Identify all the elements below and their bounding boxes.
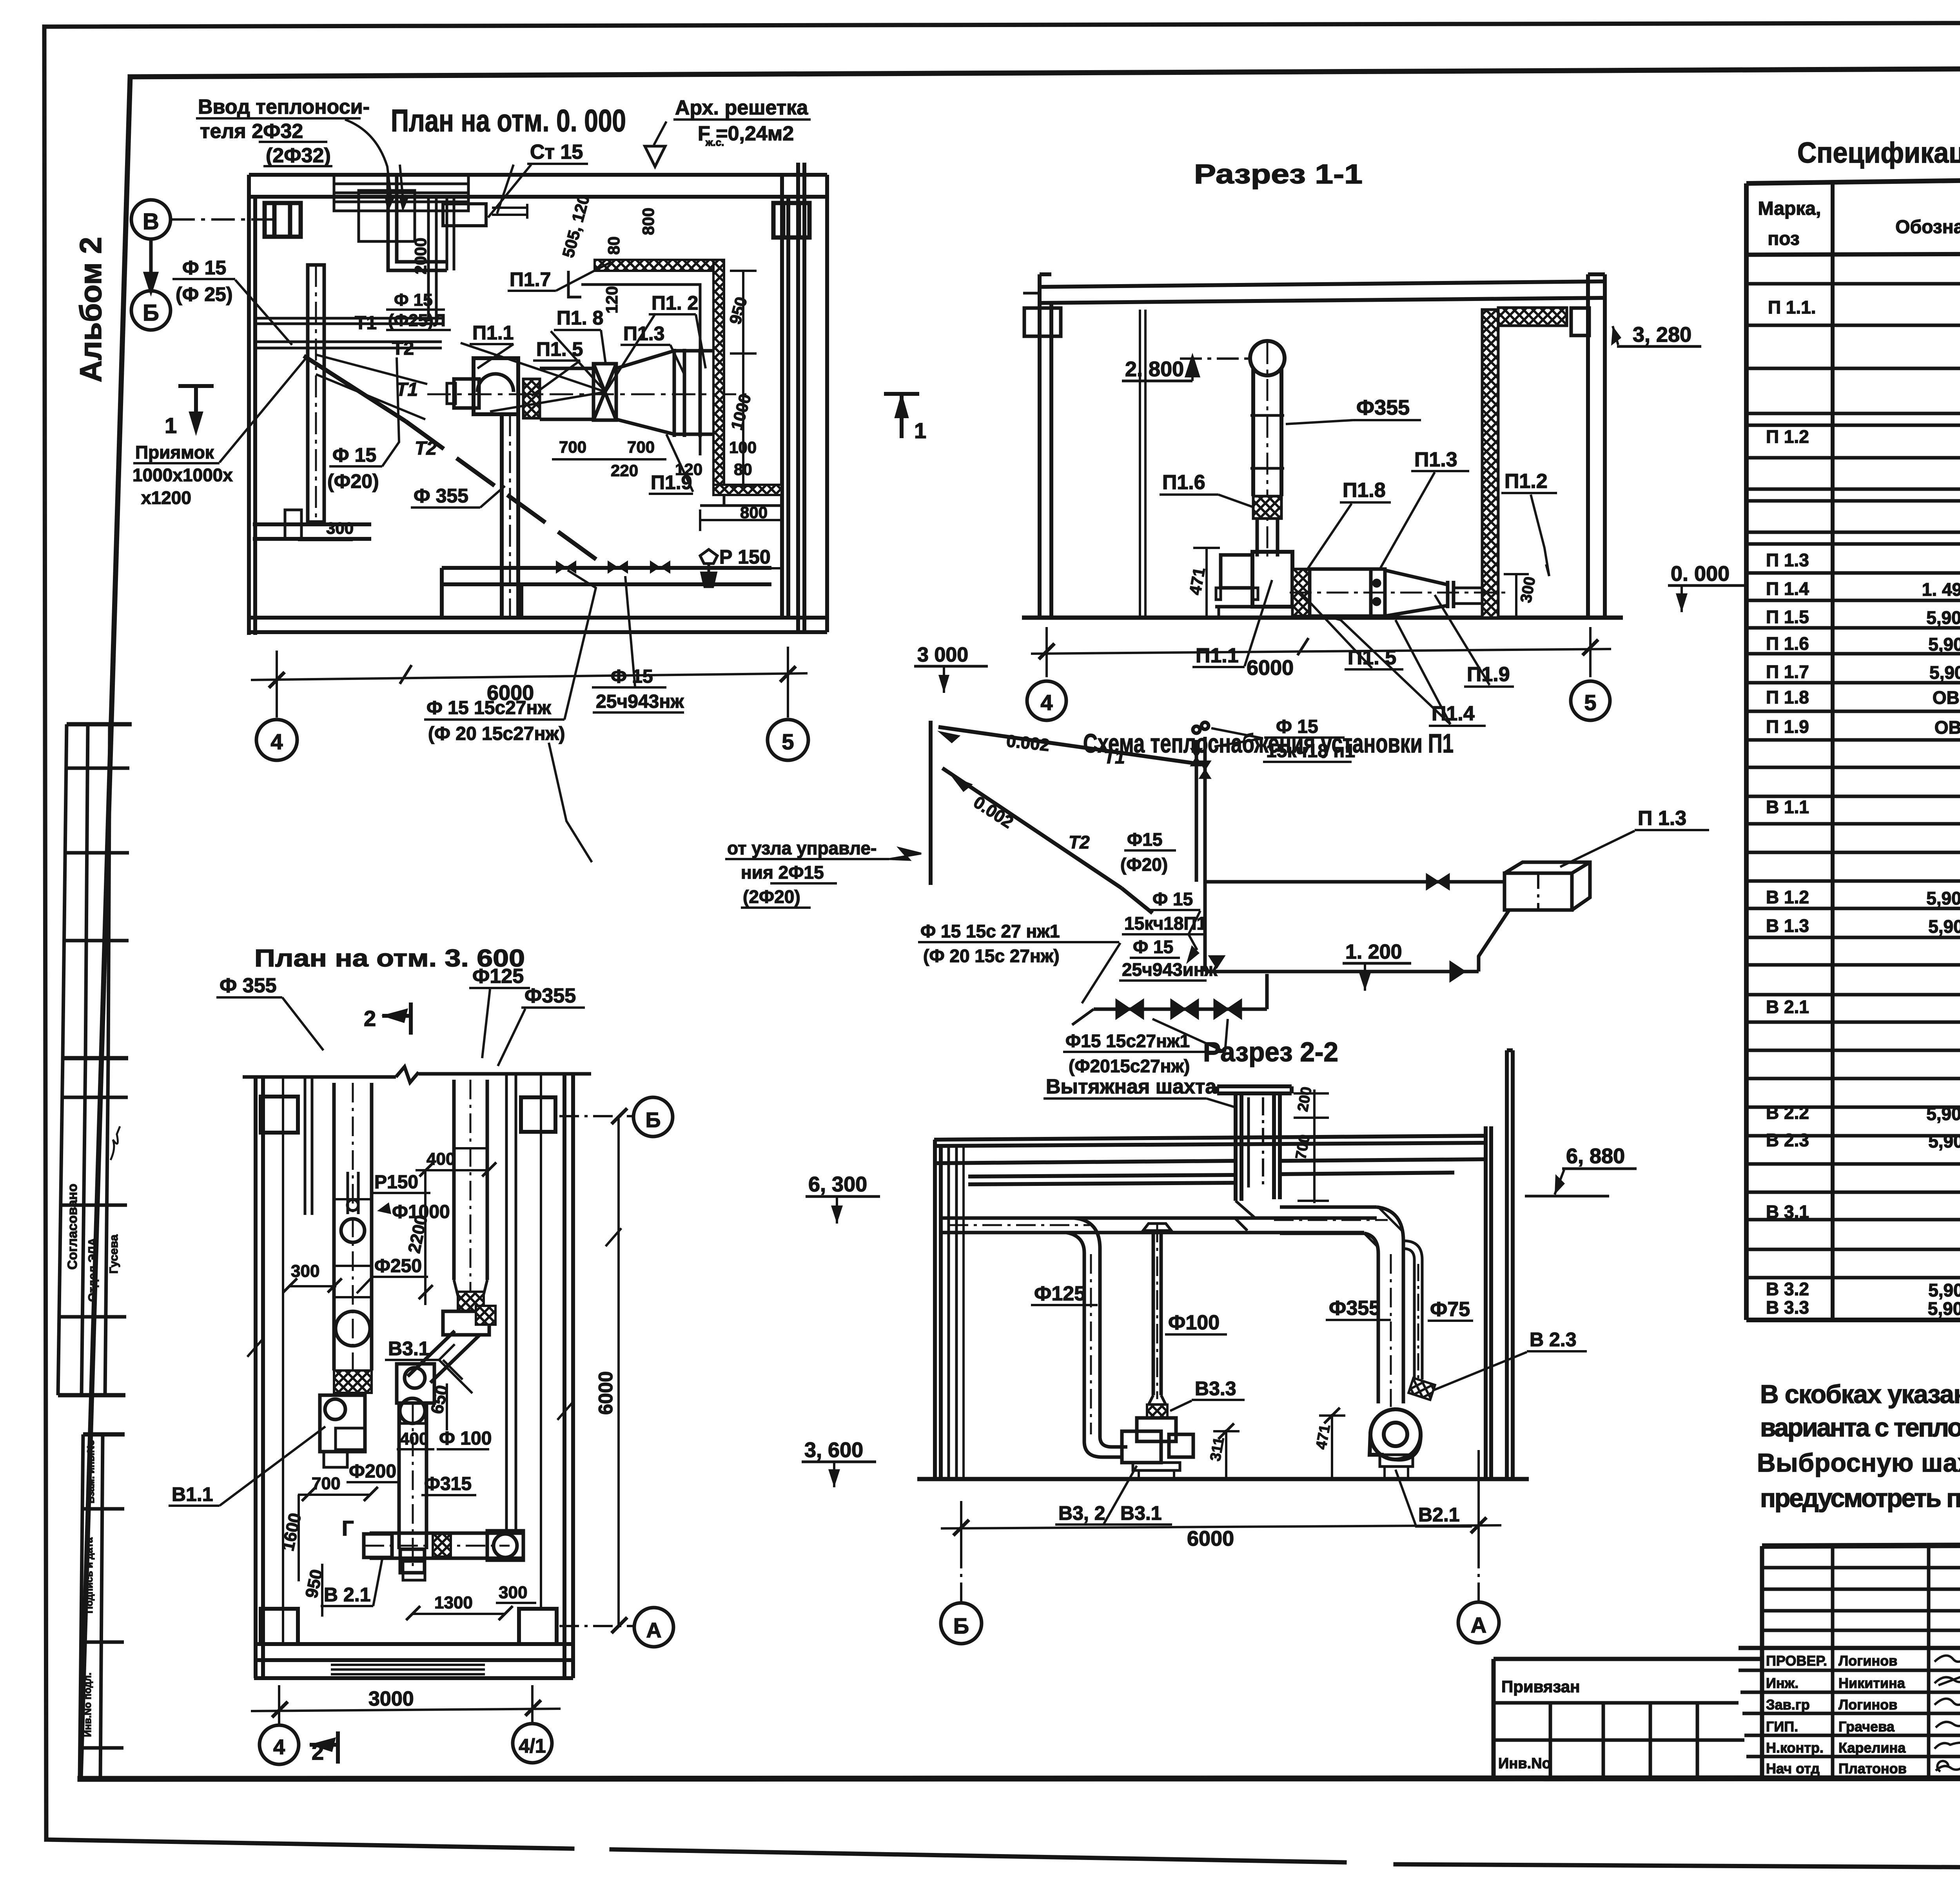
svg-text:Ф75: Ф75 (1430, 1298, 1470, 1321)
svg-text:Б: Б (953, 1613, 969, 1638)
svg-text:2: 2 (364, 1006, 376, 1031)
svg-text:(Ф2015с27нж): (Ф2015с27нж) (1069, 1056, 1190, 1076)
svg-text:В 3.3: В 3.3 (1766, 1297, 1809, 1318)
svg-text:Р 150: Р 150 (719, 546, 771, 568)
svg-text:Марка,: Марка, (1758, 198, 1821, 219)
svg-text:П1. 2: П1. 2 (652, 292, 698, 314)
svg-text:Р150: Р150 (374, 1172, 418, 1193)
svg-text:5,904-4: 5,904-4 (1929, 662, 1960, 683)
svg-text:Инж.: Инж. (1766, 1675, 1798, 1691)
svg-text:3 000: 3 000 (917, 644, 968, 666)
svg-text:80: 80 (604, 236, 623, 255)
svg-text:4: 4 (273, 1735, 285, 1759)
svg-text:1300: 1300 (434, 1593, 473, 1612)
svg-text:300: 300 (291, 1262, 319, 1281)
svg-text:Г: Г (342, 1517, 354, 1540)
svg-text:Ф 15: Ф 15 (611, 666, 653, 687)
svg-text:Ф 15 15с 27 нж1: Ф 15 15с 27 нж1 (920, 921, 1060, 941)
svg-text:ОВН 2: ОВН 2 (1935, 717, 1960, 738)
svg-text:Разрез 1-1: Разрез 1-1 (1194, 159, 1363, 189)
svg-text:Ф 15: Ф 15 (182, 257, 226, 279)
svg-text:Ф200: Ф200 (349, 1461, 396, 1482)
svg-text:П 1.1.: П 1.1. (1768, 297, 1816, 317)
svg-text:120: 120 (603, 286, 621, 314)
svg-text:1000х1000х: 1000х1000х (132, 465, 233, 485)
svg-text:Логинов: Логинов (1838, 1653, 1897, 1669)
svg-text:5,904-38: 5,904-38 (1928, 1280, 1960, 1300)
svg-text:(Ф 25): (Ф 25) (176, 283, 232, 305)
svg-text:поз: поз (1768, 228, 1800, 249)
svg-text:Ф 15: Ф 15 (1276, 716, 1318, 737)
svg-text:Ф15 15с27нж1: Ф15 15с27нж1 (1065, 1031, 1190, 1051)
svg-text:(Ф 20 15с27нж): (Ф 20 15с27нж) (428, 723, 565, 744)
svg-text:Т2: Т2 (415, 438, 437, 459)
svg-text:1: 1 (914, 418, 926, 443)
svg-text:3, 280: 3, 280 (1633, 323, 1691, 346)
svg-text:П 1.6: П 1.6 (1766, 633, 1809, 654)
svg-text:Ф355: Ф355 (1356, 396, 1410, 419)
svg-text:Ст 15: Ст 15 (530, 141, 583, 163)
svg-text:П 1.4: П 1.4 (1766, 578, 1809, 599)
svg-text:П1.1: П1.1 (472, 322, 514, 344)
svg-text:1. 494-25: 1. 494-25 (1922, 579, 1960, 600)
svg-text:4: 4 (1040, 690, 1053, 715)
svg-text:В 2.1: В 2.1 (324, 1584, 371, 1606)
svg-text:120: 120 (675, 460, 702, 479)
svg-text:Согласовано: Согласовано (65, 1184, 80, 1270)
svg-text:5: 5 (782, 729, 794, 754)
svg-text:В 1.1: В 1.1 (1766, 797, 1809, 817)
svg-text:3000: 3000 (368, 1688, 414, 1710)
svg-text:В3.1: В3.1 (1120, 1502, 1162, 1524)
svg-text:Разрез 2-2: Разрез 2-2 (1203, 1037, 1338, 1067)
svg-text:Ф15: Ф15 (1127, 829, 1162, 850)
svg-text:Ф 355: Ф 355 (220, 974, 277, 997)
svg-text:П 1.8: П 1.8 (1766, 687, 1809, 707)
svg-text:3, 600: 3, 600 (804, 1438, 863, 1462)
svg-text:В3, 2: В3, 2 (1058, 1502, 1105, 1524)
svg-text:Т1: Т1 (355, 313, 377, 334)
svg-text:Ф 15: Ф 15 (1152, 889, 1193, 909)
svg-text:Ф 100: Ф 100 (439, 1428, 492, 1449)
svg-text:700: 700 (627, 438, 655, 456)
svg-text:220: 220 (611, 461, 638, 480)
svg-text:ОВН 1: ОВН 1 (1933, 687, 1960, 708)
svg-text:Инв.No подл.: Инв.No подл. (82, 1673, 93, 1737)
svg-text:400: 400 (400, 1429, 428, 1448)
svg-text:А: А (1471, 1613, 1486, 1637)
svg-text:Ф250: Ф250 (374, 1256, 422, 1276)
svg-text:Арх. решетка: Арх. решетка (675, 96, 808, 119)
svg-text:0. 000: 0. 000 (1671, 562, 1730, 586)
svg-text:П 1.2: П 1.2 (1766, 426, 1809, 447)
svg-text:2000: 2000 (411, 238, 430, 274)
svg-text:Ф315: Ф315 (424, 1474, 472, 1494)
svg-text:5,904-38: 5,904-38 (1928, 1131, 1960, 1151)
svg-text:П1.7: П1.7 (510, 268, 551, 290)
svg-text:Выбросную шахту и архитектур: Выбросную шахту и архитектурную решетку (1757, 1448, 1960, 1477)
svg-text:П 1.7: П 1.7 (1766, 662, 1809, 682)
svg-text:В 3.2: В 3.2 (1766, 1279, 1809, 1299)
svg-text:Гусева: Гусева (107, 1235, 120, 1274)
svg-text:Отдел ЭЛА: Отдел ЭЛА (86, 1238, 99, 1302)
svg-text:15кч18 п1: 15кч18 п1 (1266, 741, 1355, 761)
svg-text:1. 200: 1. 200 (1345, 941, 1402, 963)
svg-text:Ф 15: Ф 15 (394, 290, 433, 310)
svg-text:Т1: Т1 (1104, 747, 1125, 767)
svg-text:300: 300 (499, 1583, 527, 1602)
svg-text:700: 700 (312, 1474, 340, 1493)
svg-text:Ф125: Ф125 (472, 965, 524, 988)
svg-text:П 1.3: П 1.3 (1638, 807, 1686, 830)
svg-text:В1.1: В1.1 (172, 1483, 213, 1505)
svg-text:5: 5 (1584, 690, 1596, 715)
svg-text:Ф355: Ф355 (524, 984, 576, 1007)
svg-text:Ф355: Ф355 (1329, 1297, 1380, 1320)
svg-text:ния 2Ф15: ния 2Ф15 (741, 862, 824, 883)
svg-text:В2.1: В2.1 (1418, 1504, 1460, 1526)
svg-text:П1.1: П1.1 (1196, 644, 1239, 667)
svg-text:Вытяжная шахта: Вытяжная шахта (1046, 1075, 1217, 1098)
svg-text:(Ф20): (Ф20) (1120, 854, 1168, 875)
svg-text:5,904-38: 5,904-38 (1928, 634, 1960, 654)
svg-text:ж.с.: ж.с. (705, 136, 724, 148)
svg-text:П 1.5: П 1.5 (1766, 607, 1809, 627)
svg-text:Приямок: Приямок (135, 442, 214, 462)
svg-text:5,904-38: 5,904-38 (1928, 916, 1960, 937)
svg-text:ПРОВЕР.: ПРОВЕР. (1766, 1653, 1827, 1669)
svg-text:Нач отд: Нач отд (1766, 1760, 1820, 1777)
svg-text:800: 800 (740, 503, 768, 522)
svg-text:Инв.No: Инв.No (1498, 1755, 1551, 1772)
svg-text:Т1: Т1 (396, 379, 418, 400)
svg-text:варианта с теплоносителем t=95: варианта с теплоносителем t=95-70°С (1760, 1413, 1960, 1442)
svg-text:1: 1 (165, 413, 177, 438)
svg-text:П1.6: П1.6 (1162, 471, 1205, 494)
svg-text:В: В (143, 209, 159, 234)
svg-text:ГИП.: ГИП. (1766, 1719, 1798, 1735)
svg-text:Спецификация систем отоплени: Спецификация систем отопления и вентиляц… (1797, 136, 1960, 169)
svg-text:Т2: Т2 (1069, 832, 1090, 852)
svg-text:П1. 8: П1. 8 (557, 307, 603, 329)
svg-text:теля 2Ф32: теля 2Ф32 (200, 120, 303, 143)
svg-text:5,904-38: 5,904-38 (1926, 607, 1960, 628)
svg-text:(Ф 20 15с 27нж): (Ф 20 15с 27нж) (923, 946, 1060, 966)
svg-text:Ф 15: Ф 15 (1133, 937, 1173, 957)
svg-text:6000: 6000 (1187, 1527, 1234, 1550)
svg-text:(2Ф20): (2Ф20) (743, 886, 800, 907)
svg-text:(2Ф32): (2Ф32) (266, 144, 331, 167)
svg-text:В 2.2: В 2.2 (1766, 1102, 1809, 1123)
svg-text:Подпись и дата: Подпись и дата (84, 1537, 95, 1613)
svg-text:В 3.1: В 3.1 (1766, 1202, 1809, 1222)
svg-text:800: 800 (639, 208, 657, 235)
svg-text:Ф 15 15с27нж: Ф 15 15с27нж (426, 698, 552, 718)
svg-text:25ч943инж: 25ч943инж (1122, 959, 1218, 980)
svg-text:5,904-38: 5,904-38 (1926, 1104, 1960, 1124)
svg-text:Ввод теплоноси-: Ввод теплоноси- (198, 96, 370, 118)
svg-text:Ф100: Ф100 (1168, 1311, 1220, 1334)
svg-text:Ф125: Ф125 (1034, 1282, 1085, 1305)
svg-text:4/1: 4/1 (519, 1735, 546, 1757)
svg-text:5,904-38: 5,904-38 (1926, 888, 1960, 908)
svg-text:предусмотреть при разработке: предусмотреть при разработке строительно… (1760, 1483, 1960, 1512)
svg-text:В 2.3: В 2.3 (1766, 1130, 1809, 1150)
svg-text:А: А (646, 1619, 662, 1642)
svg-text:В скобках указан диаметр для: В скобках указан диаметр для (1760, 1380, 1960, 1409)
svg-text:700: 700 (559, 438, 586, 456)
svg-text:4: 4 (270, 729, 283, 754)
svg-text:Ф 15: Ф 15 (332, 444, 376, 466)
svg-text:Б: Б (646, 1108, 661, 1132)
svg-text:Ф 355: Ф 355 (414, 485, 468, 507)
svg-text:Привязан: Привязан (1501, 1677, 1580, 1696)
svg-text:6, 300: 6, 300 (808, 1173, 867, 1196)
svg-text:В 1.2: В 1.2 (1766, 887, 1809, 907)
svg-text:Карелина: Карелина (1838, 1740, 1906, 1756)
svg-text:В 1.3: В 1.3 (1766, 915, 1809, 936)
svg-text:Грачева: Грачева (1838, 1719, 1895, 1735)
svg-text:2. 800: 2. 800 (1125, 357, 1184, 381)
svg-text:В3.3: В3.3 (1195, 1378, 1236, 1399)
svg-text:В3.1: В3.1 (388, 1338, 430, 1360)
svg-text:Взам. инв.No: Взам. инв.No (85, 1440, 96, 1504)
svg-text:П1.2: П1.2 (1504, 470, 1548, 493)
svg-text:6000: 6000 (1247, 656, 1294, 680)
svg-text:Б: Б (143, 300, 159, 326)
svg-text:П1.3: П1.3 (1414, 448, 1457, 471)
svg-text:6, 880: 6, 880 (1566, 1144, 1625, 1168)
svg-text:Н.контр.: Н.контр. (1766, 1740, 1824, 1756)
svg-text:В 2.3: В 2.3 (1530, 1329, 1577, 1351)
svg-text:(Ф20): (Ф20) (327, 470, 379, 492)
svg-text:Платонов: Платонов (1838, 1760, 1907, 1777)
svg-text:Альбом 2: Альбом 2 (73, 237, 108, 382)
svg-text:25ч943нж: 25ч943нж (596, 691, 684, 712)
svg-text:Логинов: Логинов (1838, 1697, 1897, 1713)
svg-text:5,904-38.: 5,904-38. (1928, 1298, 1960, 1319)
svg-text:от узла управле-: от узла управле- (727, 838, 877, 858)
svg-text:П 1.9: П 1.9 (1766, 716, 1809, 737)
svg-text:П 1.3: П 1.3 (1766, 550, 1809, 570)
svg-text:П1.8: П1.8 (1343, 479, 1386, 502)
svg-text:Обозначение: Обозначение (1895, 217, 1960, 237)
svg-text:Зав.гр: Зав.гр (1766, 1697, 1810, 1713)
svg-text:Т2: Т2 (392, 338, 414, 359)
svg-text:х1200: х1200 (141, 488, 191, 508)
svg-text:6000: 6000 (595, 1371, 617, 1415)
svg-text:300: 300 (326, 519, 354, 537)
svg-text:Никитина: Никитина (1838, 1675, 1906, 1691)
svg-text:План на отм. 0. 000: План на отм. 0. 000 (391, 103, 626, 138)
svg-text:В 2.1: В 2.1 (1766, 997, 1809, 1017)
